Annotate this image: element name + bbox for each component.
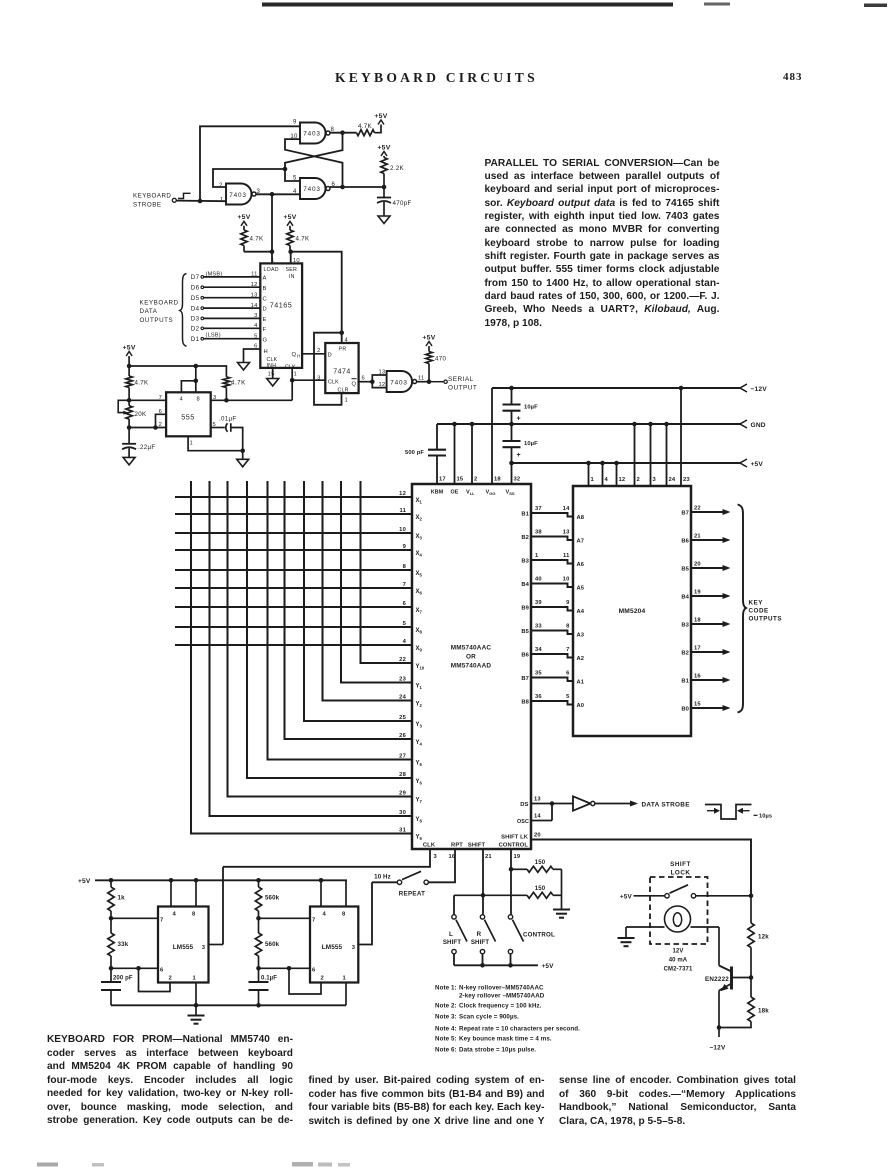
- svg-text:3: 3: [352, 945, 356, 951]
- svg-text:X6: X6: [416, 589, 423, 596]
- svg-text:10µs: 10µs: [759, 814, 772, 820]
- svg-text:7403: 7403: [229, 192, 246, 199]
- svg-text:4.7K: 4.7K: [231, 379, 246, 386]
- svg-text:CONTROL: CONTROL: [523, 932, 555, 939]
- svg-text:RPT: RPT: [451, 843, 463, 849]
- svg-text:A6: A6: [577, 562, 585, 568]
- svg-text:14: 14: [251, 303, 258, 309]
- svg-text:4: 4: [173, 912, 177, 918]
- svg-text:VLL: VLL: [466, 490, 475, 497]
- svg-text:SHIFT: SHIFT: [443, 939, 461, 946]
- svg-text:1: 1: [345, 398, 348, 404]
- svg-text:Data strobe = 10µs pulse.: Data strobe = 10µs pulse.: [459, 1046, 536, 1053]
- svg-text:21: 21: [485, 854, 492, 860]
- svg-text:CONTROL: CONTROL: [499, 843, 529, 849]
- svg-text:OUTPUT: OUTPUT: [448, 385, 477, 392]
- svg-text:KEY: KEY: [749, 599, 764, 606]
- svg-text:28: 28: [399, 772, 406, 778]
- svg-text:1: 1: [591, 477, 595, 483]
- svg-text:Y9: Y9: [416, 835, 423, 842]
- svg-text:12: 12: [619, 477, 626, 483]
- svg-text:7403: 7403: [390, 379, 407, 386]
- svg-text:2-key rollover –MM5740AAD: 2-key rollover –MM5740AAD: [459, 992, 545, 999]
- svg-text:12: 12: [379, 382, 386, 388]
- svg-text:B5: B5: [681, 566, 689, 572]
- svg-text:OUTPUTS: OUTPUTS: [749, 615, 783, 622]
- svg-text:4: 4: [254, 323, 258, 329]
- svg-text:X2: X2: [416, 515, 423, 522]
- svg-text:GND: GND: [751, 422, 766, 429]
- svg-text:7: 7: [312, 917, 315, 923]
- svg-text:B6: B6: [521, 652, 529, 658]
- svg-text:19: 19: [514, 854, 521, 860]
- svg-text:4: 4: [323, 912, 327, 918]
- svg-text:2: 2: [317, 348, 320, 354]
- svg-text:H: H: [264, 349, 268, 355]
- svg-text:3: 3: [653, 477, 657, 483]
- svg-text:B4: B4: [521, 582, 529, 588]
- svg-text:B3: B3: [521, 558, 529, 564]
- svg-text:3: 3: [317, 375, 320, 381]
- svg-text:6: 6: [160, 967, 164, 973]
- svg-text:+5V: +5V: [542, 963, 555, 970]
- svg-text:18k: 18k: [758, 1008, 769, 1015]
- svg-text:LOCK: LOCK: [671, 870, 691, 877]
- svg-text:12: 12: [399, 491, 406, 497]
- svg-text:32: 32: [514, 477, 521, 483]
- svg-text:24: 24: [399, 695, 406, 701]
- svg-text:3: 3: [254, 313, 257, 319]
- svg-text:6: 6: [312, 967, 316, 973]
- svg-text:Y1: Y1: [416, 684, 423, 691]
- svg-text:13: 13: [379, 369, 386, 375]
- svg-text:LM555: LM555: [173, 944, 194, 951]
- svg-text:1: 1: [535, 553, 539, 559]
- svg-text:Y3: Y3: [416, 722, 423, 729]
- svg-text:150: 150: [535, 860, 546, 866]
- svg-text:H: H: [297, 354, 300, 359]
- svg-text:15: 15: [457, 477, 464, 483]
- svg-text:E: E: [263, 317, 267, 323]
- svg-text:8: 8: [197, 397, 200, 403]
- svg-text:10 Hz: 10 Hz: [374, 874, 391, 881]
- svg-text:7: 7: [566, 647, 569, 653]
- svg-text:LOAD: LOAD: [264, 267, 279, 273]
- svg-text:36: 36: [535, 694, 542, 700]
- svg-text:8: 8: [566, 624, 570, 630]
- svg-text:B2: B2: [681, 650, 689, 656]
- svg-text:F: F: [263, 327, 267, 333]
- svg-text:DATA STROBE: DATA STROBE: [642, 801, 691, 808]
- svg-text:+5V: +5V: [123, 344, 136, 351]
- svg-text:SHIFT: SHIFT: [468, 843, 486, 849]
- svg-text:D7: D7: [191, 274, 200, 281]
- svg-text:X8: X8: [416, 628, 423, 635]
- svg-text:2: 2: [321, 975, 324, 981]
- svg-text:10: 10: [399, 527, 406, 533]
- svg-text:Q: Q: [292, 352, 297, 358]
- svg-text:X3: X3: [416, 534, 423, 541]
- svg-text:35: 35: [535, 671, 542, 677]
- svg-text:0.1µF: 0.1µF: [261, 976, 277, 982]
- svg-text:+5V: +5V: [620, 893, 633, 900]
- svg-text:OE: OE: [451, 490, 459, 496]
- svg-text:B5: B5: [521, 629, 529, 635]
- svg-text:B1: B1: [521, 511, 529, 517]
- svg-text:IN: IN: [289, 274, 295, 280]
- svg-text:.22µF: .22µF: [138, 444, 155, 451]
- svg-text:30: 30: [399, 810, 406, 816]
- svg-text:D4: D4: [191, 305, 200, 312]
- svg-text:6: 6: [362, 375, 365, 381]
- svg-text:CLK: CLK: [285, 365, 296, 371]
- svg-text:38: 38: [535, 530, 542, 536]
- svg-text:17: 17: [694, 646, 701, 652]
- svg-text:Note 1:: Note 1:: [435, 984, 457, 991]
- svg-text:560k: 560k: [265, 941, 280, 948]
- svg-text:Note 2:: Note 2:: [435, 1002, 457, 1009]
- svg-text:7403: 7403: [303, 130, 320, 137]
- svg-text:2: 2: [474, 477, 477, 483]
- svg-text:A7: A7: [577, 539, 585, 545]
- svg-text:470pF: 470pF: [393, 200, 412, 207]
- svg-text:5: 5: [213, 422, 216, 428]
- svg-text:1k: 1k: [118, 895, 126, 902]
- svg-text:B3: B3: [681, 622, 689, 628]
- svg-text:Y6: Y6: [416, 779, 423, 786]
- svg-text:X9: X9: [416, 646, 423, 653]
- svg-text:9: 9: [566, 600, 570, 606]
- svg-text:B7: B7: [521, 676, 529, 682]
- svg-text:17: 17: [439, 477, 446, 483]
- svg-text:4: 4: [605, 477, 609, 483]
- svg-text:500 pF: 500 pF: [405, 450, 424, 456]
- svg-text:19: 19: [694, 590, 701, 596]
- svg-text:C: C: [263, 296, 267, 302]
- svg-text:A8: A8: [577, 515, 585, 521]
- svg-text:R: R: [477, 931, 482, 938]
- svg-text:(MSB): (MSB): [206, 271, 223, 277]
- svg-text:KBM: KBM: [431, 490, 444, 496]
- svg-text:9: 9: [403, 544, 407, 550]
- svg-text:MM5204: MM5204: [619, 608, 646, 615]
- svg-text:B8: B8: [521, 699, 529, 705]
- svg-text:N-key rollover–MM5740AAC: N-key rollover–MM5740AAC: [459, 984, 544, 991]
- svg-text:B1: B1: [681, 678, 689, 684]
- svg-text:X4: X4: [416, 551, 423, 558]
- svg-text:+5V: +5V: [283, 214, 296, 221]
- svg-text:200 pF: 200 pF: [113, 976, 133, 982]
- svg-text:CODE: CODE: [749, 607, 769, 614]
- svg-text:Scan cycle = 900µs.: Scan cycle = 900µs.: [459, 1013, 519, 1020]
- svg-text:B6: B6: [681, 538, 689, 544]
- svg-text:EN2222: EN2222: [705, 976, 729, 983]
- svg-text:10: 10: [293, 258, 300, 264]
- svg-text:1: 1: [294, 372, 297, 378]
- svg-text:2: 2: [169, 975, 172, 981]
- svg-text:D: D: [328, 352, 332, 358]
- svg-text:15: 15: [694, 702, 701, 708]
- svg-text:SHIFT: SHIFT: [471, 939, 489, 946]
- svg-text:18: 18: [694, 618, 701, 624]
- svg-text:+5V: +5V: [422, 334, 435, 341]
- svg-text:20: 20: [694, 562, 701, 568]
- svg-text:Y4: Y4: [416, 740, 423, 747]
- svg-text:+5V: +5V: [377, 144, 390, 151]
- svg-text:X7: X7: [416, 608, 423, 615]
- svg-text:10: 10: [563, 577, 570, 583]
- svg-text:Clock frequency = 100 kHz.: Clock frequency = 100 kHz.: [459, 1002, 542, 1009]
- svg-text:INH: INH: [267, 363, 277, 369]
- svg-text:22: 22: [399, 657, 406, 663]
- svg-text:39: 39: [535, 600, 542, 606]
- svg-text:B9: B9: [521, 605, 529, 611]
- svg-text:B2: B2: [521, 535, 529, 541]
- svg-text:40: 40: [535, 577, 542, 583]
- svg-text:3: 3: [202, 945, 206, 951]
- svg-text:G: G: [263, 337, 268, 343]
- svg-text:4: 4: [180, 397, 184, 403]
- svg-text:555: 555: [181, 413, 195, 422]
- svg-text:8: 8: [403, 564, 407, 570]
- svg-text:29: 29: [399, 791, 406, 797]
- svg-text:6: 6: [159, 409, 162, 415]
- svg-text:9: 9: [293, 120, 297, 126]
- svg-text:5: 5: [403, 621, 407, 627]
- svg-text:5: 5: [254, 334, 257, 340]
- svg-text:10µF: 10µF: [524, 441, 538, 447]
- svg-text:+: +: [517, 416, 521, 423]
- svg-text:X5: X5: [416, 571, 423, 578]
- svg-text:23: 23: [399, 677, 406, 683]
- svg-text:REPEAT: REPEAT: [399, 890, 425, 897]
- svg-text:560k: 560k: [265, 895, 280, 902]
- svg-text:CLK: CLK: [423, 843, 436, 849]
- svg-text:25: 25: [399, 715, 406, 721]
- svg-text:+5V: +5V: [237, 214, 250, 221]
- svg-text:CLR: CLR: [338, 387, 349, 393]
- svg-text:3: 3: [434, 854, 438, 860]
- svg-text:1: 1: [193, 975, 197, 981]
- svg-text:31: 31: [399, 828, 406, 834]
- svg-text:A0: A0: [577, 703, 585, 709]
- svg-text:8: 8: [342, 912, 346, 918]
- svg-text:VSS: VSS: [506, 490, 515, 497]
- svg-text:16: 16: [694, 674, 701, 680]
- svg-text:Repeat rate = 10 characters pe: Repeat rate = 10 characters per second.: [459, 1025, 580, 1032]
- svg-text:PR: PR: [339, 347, 347, 353]
- svg-text:12: 12: [251, 282, 258, 288]
- svg-text:LM555: LM555: [322, 944, 343, 951]
- svg-text:6: 6: [566, 671, 570, 677]
- svg-text:B7: B7: [681, 510, 689, 516]
- svg-text:24: 24: [669, 477, 676, 483]
- svg-text:OR: OR: [466, 654, 476, 661]
- svg-text:13: 13: [534, 797, 541, 803]
- svg-text:470: 470: [435, 355, 446, 362]
- svg-text:A: A: [263, 276, 267, 282]
- svg-text:SHIFT: SHIFT: [670, 861, 691, 868]
- svg-text:KEYBOARD: KEYBOARD: [140, 299, 179, 306]
- svg-text:CLK: CLK: [267, 357, 278, 363]
- svg-text:CLK: CLK: [328, 379, 339, 385]
- svg-text:+5V: +5V: [751, 461, 764, 468]
- svg-text:A1: A1: [577, 680, 585, 686]
- svg-text:−12V: −12V: [710, 1045, 726, 1052]
- svg-text:22: 22: [694, 506, 701, 512]
- svg-text:23: 23: [683, 477, 690, 483]
- svg-text:7: 7: [159, 395, 162, 401]
- svg-text:3: 3: [213, 395, 216, 401]
- svg-text:Q: Q: [352, 382, 357, 388]
- svg-text:7474: 7474: [333, 369, 351, 376]
- svg-text:MM5740AAD: MM5740AAD: [451, 663, 492, 670]
- svg-text:2: 2: [159, 422, 162, 428]
- svg-text:Note 5:: Note 5:: [435, 1035, 457, 1042]
- svg-text:4.7K: 4.7K: [250, 236, 265, 243]
- svg-text:4.7K: 4.7K: [358, 123, 373, 130]
- svg-text:SER: SER: [286, 267, 298, 273]
- svg-text:7403: 7403: [303, 186, 320, 193]
- svg-text:6: 6: [403, 601, 407, 607]
- svg-text:D6: D6: [191, 285, 200, 292]
- svg-text:27: 27: [399, 754, 406, 760]
- svg-text:11: 11: [563, 553, 570, 559]
- svg-text:12V: 12V: [673, 949, 684, 955]
- svg-text:Key bounce mask time = 4 ms.: Key bounce mask time = 4 ms.: [459, 1035, 552, 1042]
- svg-text:33k: 33k: [118, 941, 129, 948]
- svg-text:Y7: Y7: [416, 798, 423, 805]
- svg-text:2: 2: [219, 183, 223, 189]
- svg-text:40 mA: 40 mA: [669, 958, 688, 964]
- svg-text:4.7K: 4.7K: [296, 236, 311, 243]
- svg-text:1: 1: [190, 441, 193, 447]
- svg-text:7: 7: [403, 582, 406, 588]
- svg-text:.01µF: .01µF: [219, 416, 236, 423]
- svg-text:X1: X1: [416, 498, 423, 505]
- svg-text:Y5: Y5: [416, 761, 423, 768]
- svg-text:34: 34: [535, 647, 542, 653]
- svg-text:11: 11: [251, 272, 257, 278]
- svg-text:A2: A2: [577, 656, 585, 662]
- svg-text:Note 6:: Note 6:: [435, 1046, 457, 1053]
- svg-text:OSC: OSC: [517, 819, 529, 825]
- svg-text:(LSB): (LSB): [206, 333, 221, 339]
- svg-text:14: 14: [534, 814, 541, 820]
- svg-text:11: 11: [418, 375, 424, 381]
- svg-text:10µF: 10µF: [524, 405, 538, 411]
- svg-text:CM2-7371: CM2-7371: [664, 967, 693, 973]
- svg-text:12k: 12k: [758, 934, 769, 941]
- svg-text:150: 150: [535, 886, 546, 892]
- svg-text:STROBE: STROBE: [133, 201, 161, 208]
- svg-text:D2: D2: [191, 326, 200, 333]
- svg-text:+: +: [517, 452, 521, 459]
- svg-text:5: 5: [566, 694, 570, 700]
- svg-text:18: 18: [494, 477, 501, 483]
- svg-text:8: 8: [192, 912, 196, 918]
- svg-text:Y10: Y10: [416, 664, 425, 671]
- svg-text:B4: B4: [681, 594, 689, 600]
- svg-text:1: 1: [271, 258, 274, 264]
- svg-text:Y8: Y8: [416, 817, 423, 824]
- svg-text:4: 4: [403, 639, 407, 645]
- svg-text:Note 4:: Note 4:: [435, 1025, 457, 1032]
- svg-text:1: 1: [343, 975, 347, 981]
- svg-text:11: 11: [399, 508, 406, 514]
- svg-text:74165: 74165: [270, 301, 293, 310]
- svg-text:SERIAL: SERIAL: [448, 376, 474, 383]
- svg-text:DS: DS: [520, 802, 528, 808]
- svg-text:+5V: +5V: [374, 113, 387, 120]
- svg-text:14: 14: [563, 506, 570, 512]
- svg-text:D5: D5: [191, 295, 200, 302]
- svg-text:26: 26: [399, 733, 406, 739]
- svg-text:VGG: VGG: [486, 490, 496, 497]
- svg-text:D1: D1: [191, 336, 200, 343]
- svg-text:4: 4: [345, 338, 349, 344]
- svg-text:20: 20: [534, 833, 541, 839]
- svg-text:33: 33: [535, 624, 542, 630]
- svg-text:KEYBOARD: KEYBOARD: [133, 192, 171, 199]
- svg-text:MM5740AAC: MM5740AAC: [451, 645, 492, 652]
- svg-text:21: 21: [694, 534, 701, 540]
- svg-text:7: 7: [160, 917, 163, 923]
- svg-text:37: 37: [535, 506, 542, 512]
- svg-text:OUTPUTS: OUTPUTS: [140, 317, 174, 324]
- svg-text:DATA: DATA: [140, 308, 158, 315]
- svg-text:Y2: Y2: [416, 702, 423, 709]
- svg-text:13: 13: [251, 293, 258, 299]
- svg-text:+5V: +5V: [78, 878, 91, 885]
- svg-text:2.2K: 2.2K: [390, 165, 405, 172]
- svg-text:D: D: [263, 307, 267, 313]
- svg-text:SHIFT LK: SHIFT LK: [501, 834, 529, 840]
- svg-text:13: 13: [563, 530, 570, 536]
- svg-text:20K: 20K: [135, 411, 147, 418]
- svg-text:Note 3:: Note 3:: [435, 1013, 457, 1020]
- svg-text:A4: A4: [577, 609, 585, 615]
- svg-text:A5: A5: [577, 586, 585, 592]
- svg-text:D3: D3: [191, 316, 200, 323]
- svg-text:−12V: −12V: [751, 386, 768, 393]
- svg-text:4.7K: 4.7K: [135, 379, 150, 386]
- svg-text:A3: A3: [577, 633, 585, 639]
- svg-text:L: L: [449, 931, 453, 938]
- svg-text:2: 2: [637, 477, 640, 483]
- svg-text:B: B: [263, 286, 267, 292]
- svg-text:B0: B0: [681, 706, 689, 712]
